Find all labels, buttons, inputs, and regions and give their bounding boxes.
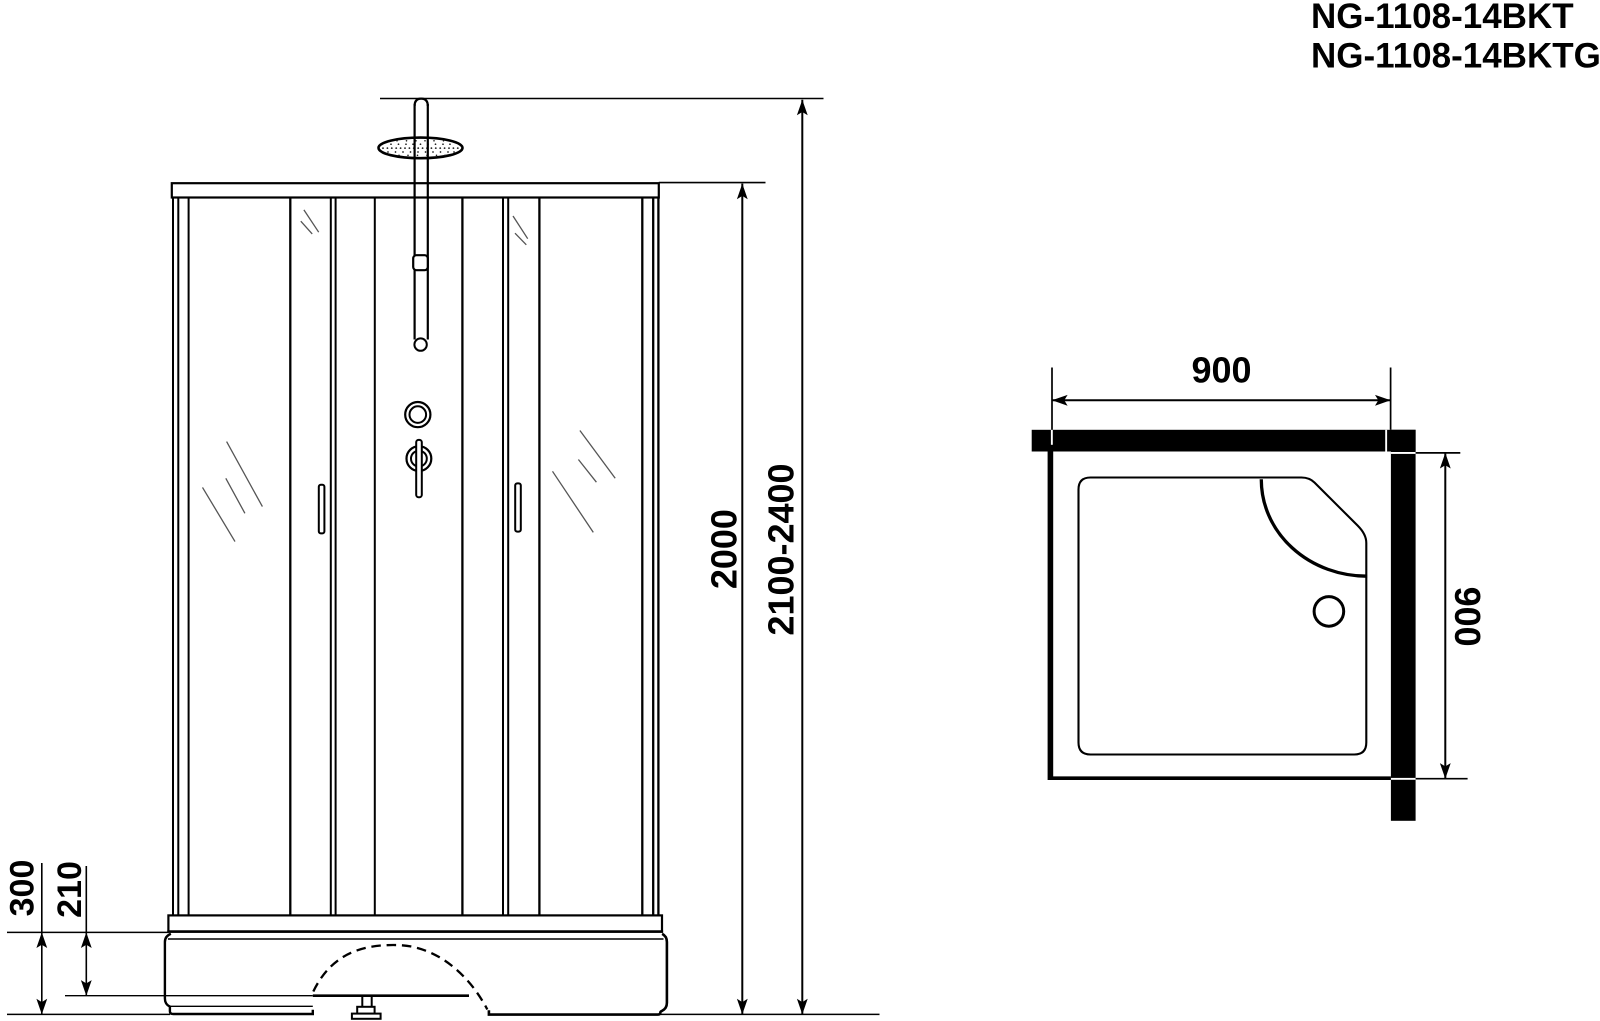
svg-text:2000: 2000 bbox=[704, 509, 745, 589]
svg-text:NG-1108-14BKT: NG-1108-14BKT bbox=[1311, 0, 1574, 36]
svg-text:210: 210 bbox=[51, 861, 89, 918]
svg-text:300: 300 bbox=[4, 860, 42, 917]
svg-text:900: 900 bbox=[1447, 587, 1488, 647]
svg-text:900: 900 bbox=[1191, 350, 1251, 391]
svg-text:NG-1108-14BKTG: NG-1108-14BKTG bbox=[1311, 37, 1600, 76]
svg-text:2100-2400: 2100-2400 bbox=[761, 463, 802, 635]
